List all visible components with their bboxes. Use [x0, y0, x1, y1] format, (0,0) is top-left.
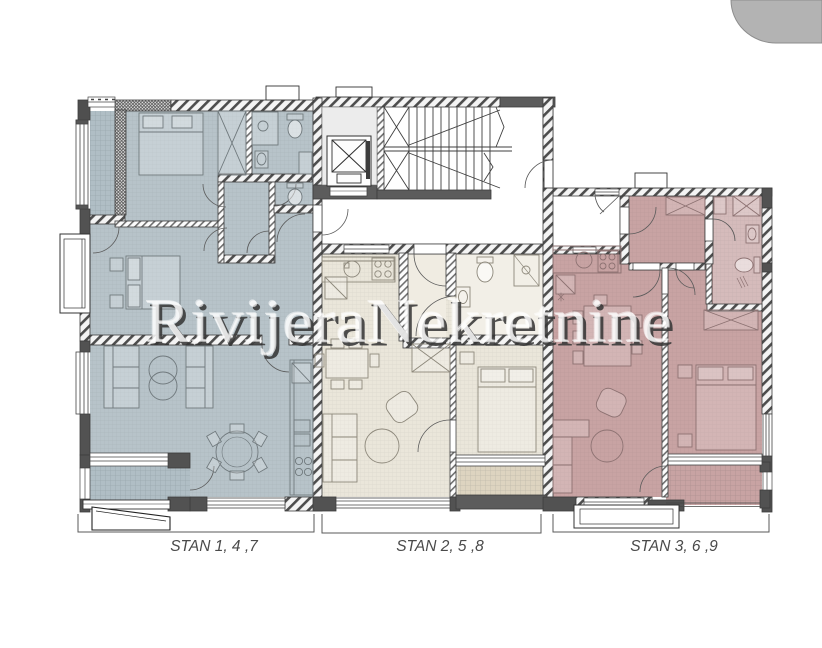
- svg-text:STAN 1, 4 ,7: STAN 1, 4 ,7: [170, 538, 259, 555]
- svg-text:STAN 2, 5 ,8: STAN 2, 5 ,8: [396, 538, 484, 555]
- svg-text:STAN 3, 6 ,9: STAN 3, 6 ,9: [630, 538, 718, 555]
- svg-text:RivijeraNekretnine: RivijeraNekretnine: [145, 288, 672, 356]
